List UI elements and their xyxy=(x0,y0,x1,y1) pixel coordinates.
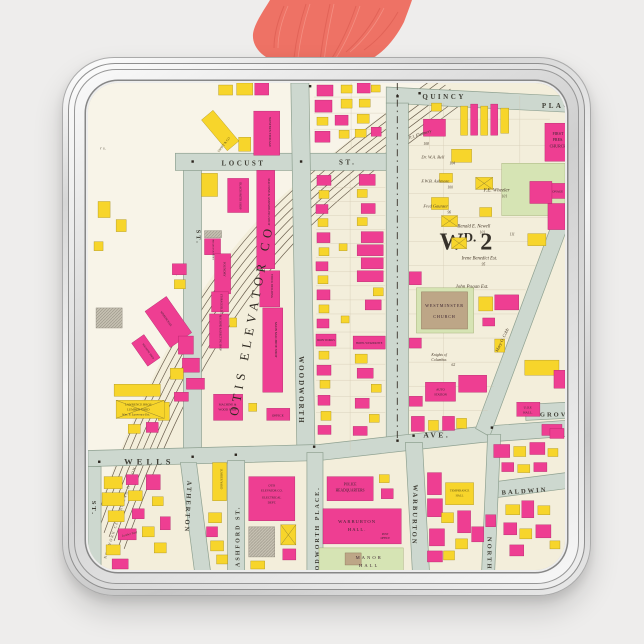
street-label-locust-st: ST. xyxy=(339,158,356,166)
temperance-l2: HALL xyxy=(456,494,464,498)
owner-bell-num: 104 xyxy=(450,161,456,165)
owner-bell: Dr. W.A. Bell xyxy=(420,154,445,159)
frame-corner-highlight xyxy=(557,561,565,570)
otis-elec-l2: ELEVATOR CO. xyxy=(261,489,283,493)
owner-benedict: Irene Benedict Est. xyxy=(461,257,498,262)
stock-label: STOCK BUILDING xyxy=(270,274,274,299)
street-label-wells: WELLS xyxy=(124,457,174,467)
blacksmith-label: BLACKSMITH SHOP xyxy=(239,182,243,209)
owner-ashmore: F.W.B. Ashmore xyxy=(420,178,449,183)
ornament: RAIL ROAD NEW YORK CENTRAL AND HUDSON RI… xyxy=(62,57,591,596)
lawrence-est-label: Wm. F. Lawrence Est. xyxy=(122,412,150,416)
warburton-hall-l2: HALL. xyxy=(348,527,366,532)
owner-wheeler-num: 101 xyxy=(502,194,508,198)
brass-label: BRASS FOUNDRY xyxy=(212,240,215,261)
otis-elec-l1: OTIS xyxy=(268,484,275,488)
western-storage-label: WESTERN STORAGE xyxy=(268,117,272,147)
erecting-label: MACHINE & ERECTING SHOP xyxy=(219,315,222,351)
westminster-l1: WESTMINSTER xyxy=(425,303,464,308)
main-machine-label: MAIN MACHINE SHOP xyxy=(274,322,278,357)
uof-l1: U.O.F. xyxy=(524,405,533,409)
street-label-quincy: QUINCY xyxy=(422,93,466,101)
ornament-frame-ring-inner: RAIL ROAD NEW YORK CENTRAL AND HUDSON RI… xyxy=(74,69,579,584)
post-office-l2: OFFICE xyxy=(381,537,391,540)
street-label-locust: LOCUST xyxy=(222,159,266,167)
map-well: RAIL ROAD NEW YORK CENTRAL AND HUDSON RI… xyxy=(88,83,565,570)
product-photo: RAIL ROAD NEW YORK CENTRAL AND HUDSON RI… xyxy=(0,0,644,644)
uof-l2: HALL. xyxy=(523,410,532,414)
street-label-warburton: WARBURTON xyxy=(410,485,418,546)
street-label-woodworth-place: WOODWORTH PLACE. xyxy=(315,486,321,570)
storage-label: STORAGE BLDG. xyxy=(220,294,223,315)
owner-wheeler: F.E. Wheeler xyxy=(483,188,510,193)
warburton-hall-l1: WARBURTON xyxy=(338,519,376,524)
owner-columbus-num: 62 xyxy=(452,363,456,367)
assembling-label: MACHINE & ASSEMBLING SHOP xyxy=(267,178,271,225)
street-label-quincy-place: PLACE xyxy=(542,102,565,110)
westminster-l2: CHURCH xyxy=(433,314,455,319)
auto-l2: STATION xyxy=(434,392,447,396)
lot-111: 111 xyxy=(510,233,515,237)
street-label-grove: GROVE xyxy=(540,411,565,418)
street-label-north: NORTH xyxy=(486,537,493,570)
owner-benedict-num: 95 xyxy=(482,263,486,267)
street-label-woodworth: WOODWORTH xyxy=(297,356,305,424)
owner-ashmore-num: 100 xyxy=(448,185,454,189)
street-locust xyxy=(175,153,401,170)
lawrence-l2: LUMBER YARD xyxy=(127,407,150,411)
otis-elec-l3: ELECTRICAL xyxy=(262,496,281,500)
owner-columbus-l2: Columbus xyxy=(431,358,447,362)
hotel-label: HOTEL WYANDOTTE xyxy=(356,342,383,345)
manor-l1: MANOR xyxy=(356,555,383,560)
street-far-left-st xyxy=(88,467,101,570)
office-label: OFFICE xyxy=(272,413,284,417)
iron-works-label: IRON WORKS xyxy=(317,338,335,342)
street-label-ashford: ASHFORD ST. xyxy=(236,506,242,567)
ornament-frame-ring-outer: RAIL ROAD NEW YORK CENTRAL AND HUDSON RI… xyxy=(68,63,585,590)
police-l2: HEADQUARTERS xyxy=(336,489,365,493)
auto-l1: AUTO xyxy=(436,387,445,391)
manor-l2: HALL xyxy=(359,563,379,568)
first-pres-l2: PRES. xyxy=(553,137,564,142)
first-pres-l3: CHURCH xyxy=(550,143,565,148)
street-label-left-st: ST. xyxy=(194,230,201,245)
block-warburton-hall: POLICE HEADQUARTERS WARBURTON HALL. POST… xyxy=(319,475,403,570)
owner-gaunzer-num: 96 xyxy=(448,211,452,215)
lawrence-l1: LAWRENCE BROS xyxy=(125,402,152,406)
owner-columbus-l1: Knights of xyxy=(430,353,447,357)
street-label-wells-ave: AVE. xyxy=(423,430,450,439)
lumber-yard-label: LUMBER YARD xyxy=(220,469,224,490)
post-office-l1: POST xyxy=(382,533,389,536)
street-label-far-left-st: ST. xyxy=(90,501,97,516)
street-left-st xyxy=(183,170,201,452)
westminster-church xyxy=(421,292,467,329)
owner-flannery-num: 108 xyxy=(423,142,429,146)
foundry-label: FOUNDRY xyxy=(223,262,227,278)
owner-gaunzer: Fred Gaunzer xyxy=(422,204,448,209)
temperance-l1: TEMPERANCE xyxy=(450,489,470,493)
otis-elec-l4: DEPT. xyxy=(268,501,277,505)
first-pres-l1: FIRST xyxy=(553,131,564,136)
west-label: r s. xyxy=(100,145,106,150)
police-l1: POLICE xyxy=(344,483,357,487)
map-svg: RAIL ROAD NEW YORK CENTRAL AND HUDSON RI… xyxy=(88,83,565,570)
